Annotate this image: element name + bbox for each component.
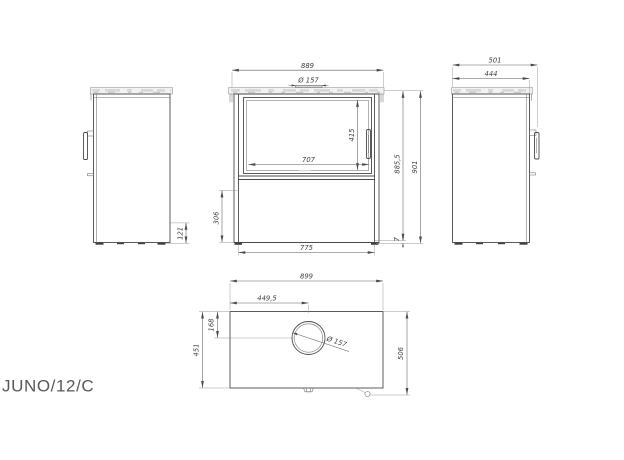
left-view-foot [138, 243, 145, 245]
right-view-foot [455, 243, 463, 245]
dim-label-top-flue-offset-x: 449,5 [257, 295, 276, 303]
stove-dimension-drawing: 121 889 Ø 157 415 [0, 0, 624, 460]
dim-label-front-flue-diameter: Ø 157 [297, 76, 319, 84]
technical-drawing-sheet: 121 889 Ø 157 415 [0, 0, 624, 460]
dim-label-top-total-depth: 506 [397, 346, 405, 360]
dim-label-front-total-height: 901 [411, 161, 419, 174]
dim-label-top-flue-offset-y: 168 [208, 318, 216, 332]
right-view-foot [476, 243, 483, 245]
dim-label-front-floor-gap: 7 [393, 236, 401, 241]
front-view-foot [371, 243, 379, 245]
left-view-foot [96, 243, 104, 245]
dim-label-top-total-width: 899 [300, 273, 313, 281]
model-label: JUNO/12/C [2, 377, 94, 396]
dim-label-front-total-width: 889 [301, 62, 314, 70]
dim-label-front-leg-span: 775 [300, 244, 313, 252]
front-view-logo-mark [299, 170, 311, 172]
left-view-foot [117, 243, 124, 245]
dim-label-right-total-depth: 501 [489, 57, 502, 65]
dim-label-front-height-to-top: 885,5 [393, 154, 401, 173]
front-view-foot [235, 243, 243, 245]
dim-label-front-glass-height: 415 [348, 129, 356, 142]
dim-label-top-body-depth: 451 [193, 344, 201, 357]
right-view-foot [520, 243, 528, 245]
dim-label-front-glass-width: 707 [302, 156, 316, 164]
dim-label-left-lower-height: 121 [177, 227, 185, 240]
dim-label-right-body-depth: 444 [485, 70, 498, 78]
right-view-foot [498, 243, 505, 245]
dim-label-front-plinth-height: 306 [212, 211, 220, 225]
left-view-foot [158, 243, 166, 245]
